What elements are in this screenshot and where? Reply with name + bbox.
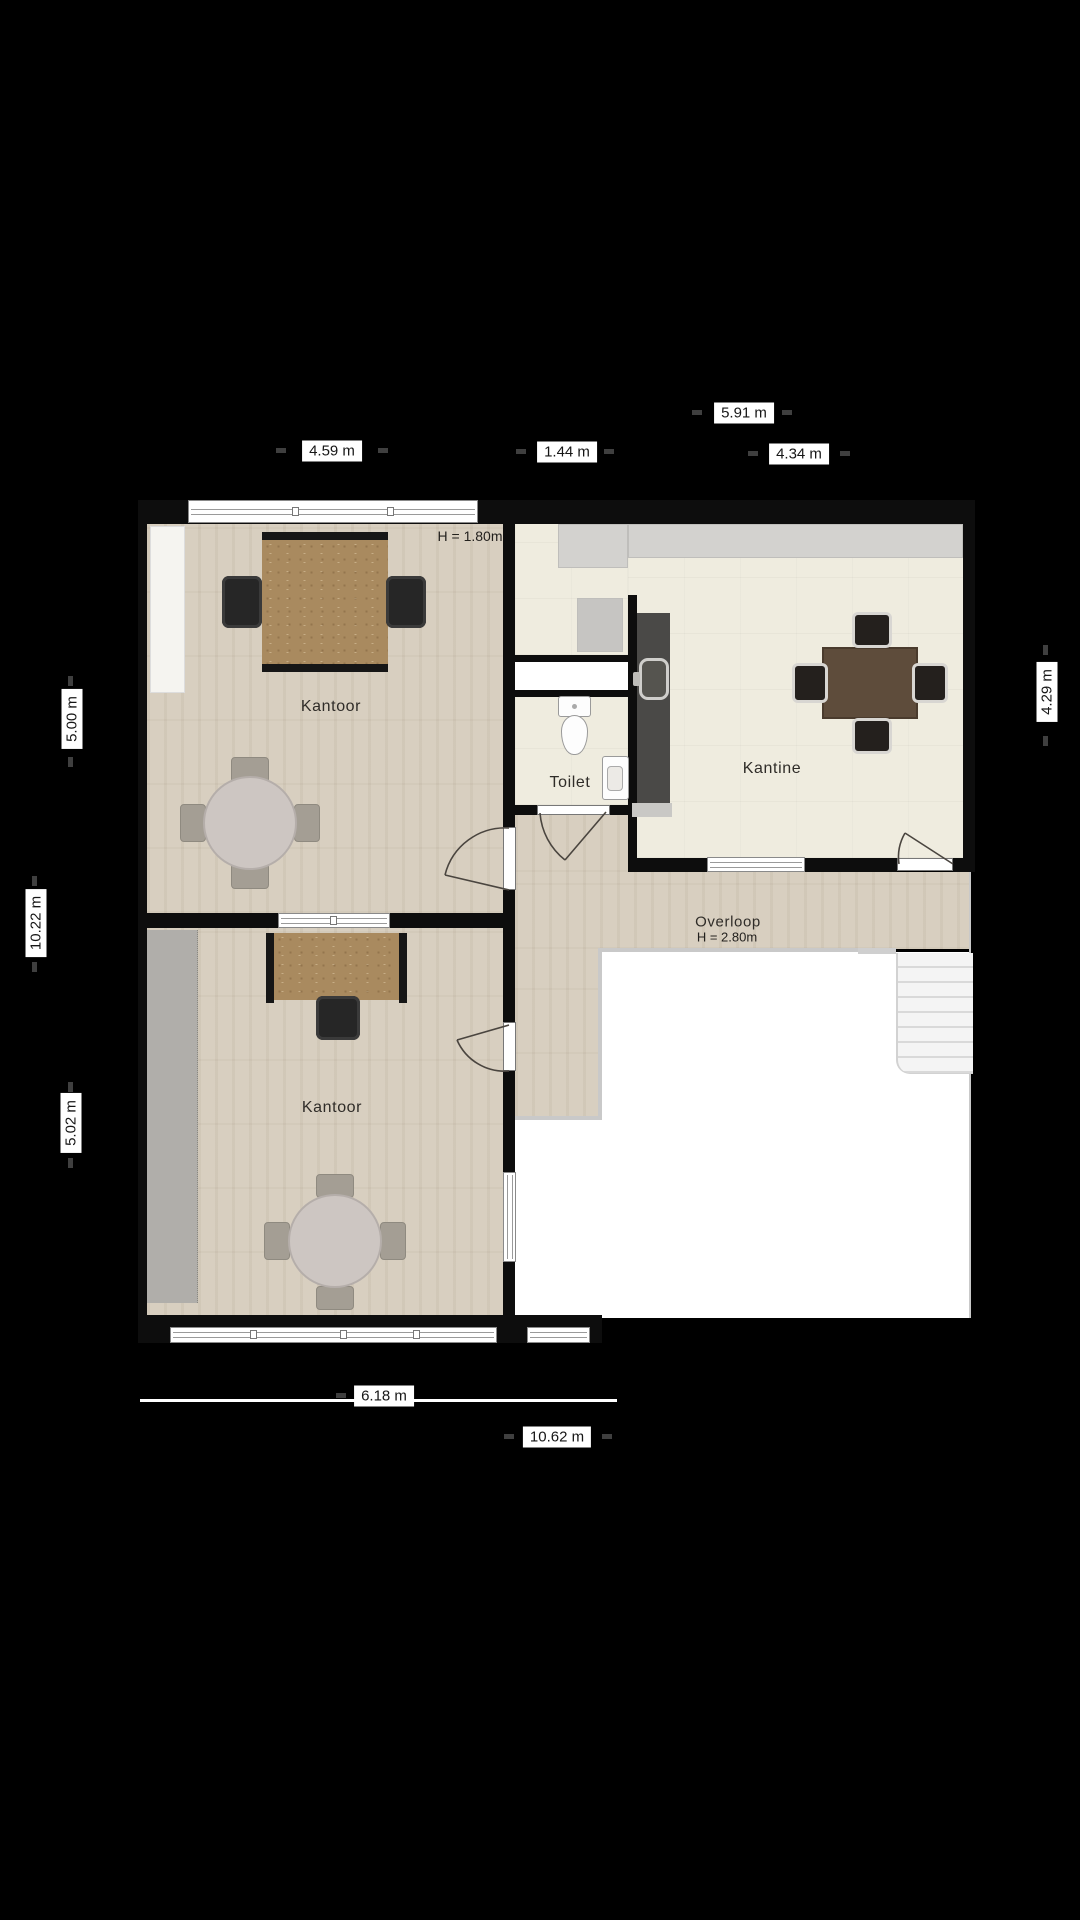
door-kantine-swing — [893, 826, 961, 871]
dim-stub — [378, 448, 388, 453]
door-kantoor-bottom-swing — [450, 1018, 520, 1078]
dim-bottom-total: 10.62 m — [523, 1427, 591, 1448]
label-kantoor-bottom: Kantoor — [302, 1099, 362, 1117]
window-tick — [330, 916, 337, 925]
window-kantine-bottom — [707, 857, 805, 872]
void-edge-right — [969, 872, 971, 1318]
meeting2-chair-w — [264, 1222, 290, 1260]
meeting2-chair-s — [316, 1286, 354, 1310]
hall-cabinet — [558, 524, 628, 568]
wall-kantine-bottom-a — [628, 858, 707, 872]
dim-stub — [504, 1434, 514, 1439]
label-overloop-height: H = 2.80m — [697, 930, 757, 945]
dim-stub — [516, 449, 526, 454]
kantine-table — [822, 647, 918, 719]
void-edge-vert — [598, 948, 602, 1120]
void-area-left — [515, 1120, 602, 1316]
label-toilet: Toilet — [550, 774, 591, 792]
void-edge-top — [600, 948, 896, 952]
label-kantine: Kantine — [743, 760, 801, 778]
round-table-top — [203, 776, 297, 870]
wall-toilet-bottom-b — [610, 805, 628, 815]
label-kantoor-height: H = 1.80m — [438, 528, 503, 544]
dim-stub — [602, 1434, 612, 1439]
void-edge-corridor — [515, 1116, 602, 1120]
dim-top-kantine-outer: 5.91 m — [714, 403, 774, 424]
wall-mid-3 — [503, 1071, 515, 1172]
floorplan-canvas: Kantoor Kantoor Kantine Toilet Overloop … — [0, 0, 1080, 1920]
dim-left-lower: 5.02 m — [61, 1093, 82, 1153]
kantine-chair-n — [852, 612, 892, 648]
dim-right-kantine: 4.29 m — [1037, 662, 1058, 722]
gray-worktop — [147, 930, 198, 1303]
window-tick — [387, 507, 394, 516]
window-kantoor-top — [188, 500, 478, 523]
dim-stub — [1043, 736, 1048, 746]
dim-stub — [68, 676, 73, 686]
dim-top-hall: 1.44 m — [537, 442, 597, 463]
shaft — [515, 662, 628, 690]
dim-stub — [276, 448, 286, 453]
dim-stub — [68, 757, 73, 767]
dim-stub — [336, 1393, 346, 1398]
desk-top-edge — [262, 532, 388, 540]
office-chair-right — [386, 576, 426, 628]
window-tick — [413, 1330, 420, 1339]
dim-stub — [68, 1158, 73, 1168]
dim-top-kantoor: 4.59 m — [302, 441, 362, 462]
wall-kantine-right — [963, 505, 975, 872]
dim-left-total: 10.22 m — [26, 889, 47, 957]
office-chair-bottom — [316, 996, 360, 1040]
door-toilet-swing — [533, 808, 611, 870]
desk2-left-edge — [266, 933, 274, 1003]
kantine-chair-s — [852, 718, 892, 754]
floor-overloop-c — [515, 949, 602, 1118]
hall-wardrobe — [577, 598, 623, 652]
staircase — [896, 953, 973, 1074]
window-kantoor-bottom — [170, 1327, 497, 1343]
label-overloop: Overloop — [695, 914, 761, 931]
toilet-cistern-button — [572, 704, 577, 709]
meeting2-chair-e — [380, 1222, 406, 1260]
kantine-counter-band — [628, 524, 963, 558]
desk-kantoor-top — [262, 540, 388, 664]
label-kantoor-top: Kantoor — [301, 698, 361, 716]
sink-faucet — [633, 672, 640, 686]
dim-stub — [840, 451, 850, 456]
dim-bottom-left: 6.18 m — [354, 1386, 414, 1407]
dim-stub — [692, 410, 702, 415]
dim-top-kantine-inner: 4.34 m — [769, 444, 829, 465]
dim-stub — [604, 449, 614, 454]
kitchen-sink — [639, 658, 669, 700]
dim-stub — [748, 451, 758, 456]
kantine-chair-e — [912, 663, 948, 703]
stair-landing-edge — [858, 948, 896, 954]
dim-stub — [32, 962, 37, 972]
dim-stub — [68, 1082, 73, 1092]
wall-mid-1 — [503, 524, 515, 827]
office-chair-left — [222, 576, 262, 628]
dim-stub — [782, 410, 792, 415]
meeting-chair-e — [294, 804, 320, 842]
desk2-right-edge — [399, 933, 407, 1003]
cabinet-white — [150, 526, 185, 693]
wall-toilet-top-a — [515, 655, 628, 662]
desk-bottom-edge — [262, 664, 388, 672]
counter-end-cap — [632, 803, 672, 817]
kitchen-counter — [637, 613, 670, 803]
wall-kantine-bottom-b — [805, 858, 897, 872]
wall-kantine-left — [628, 595, 637, 872]
window-tick — [250, 1330, 257, 1339]
window-tick — [292, 507, 299, 516]
window-tick — [340, 1330, 347, 1339]
window-corridor-bottom — [527, 1327, 590, 1343]
dim-stub — [1043, 645, 1048, 655]
kantine-chair-w — [792, 663, 828, 703]
door-kantoor-top-swing — [437, 822, 517, 897]
dim-stub — [32, 876, 37, 886]
desk-kantoor-bottom — [274, 933, 399, 1000]
window-kantoor-right — [503, 1172, 516, 1262]
round-table-bottom — [288, 1194, 382, 1288]
wall-mid-2 — [503, 890, 515, 1022]
dim-left-upper: 5.00 m — [62, 689, 83, 749]
hand-basin-bowl — [607, 766, 623, 791]
